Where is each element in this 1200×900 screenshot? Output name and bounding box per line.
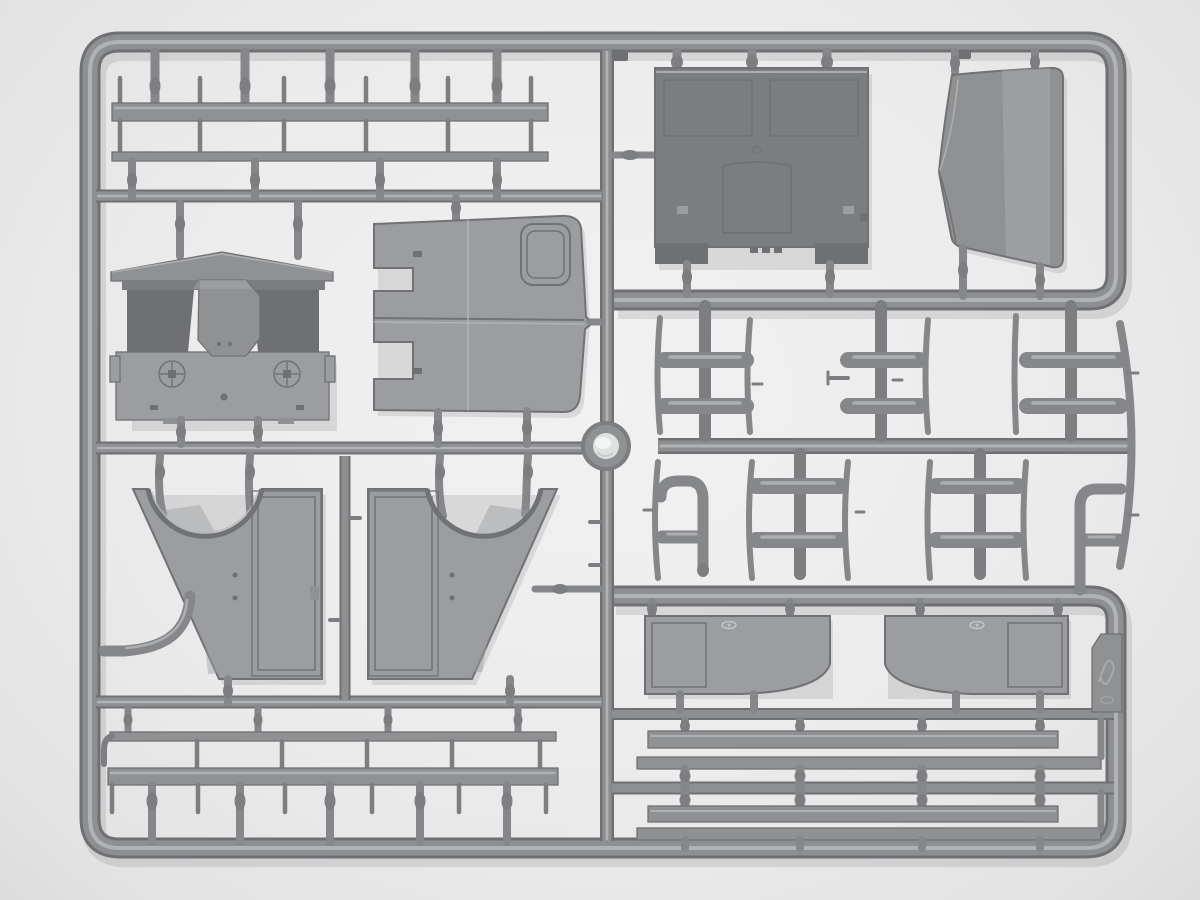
front-panel-body bbox=[655, 68, 868, 247]
cab-roof-cowl-part bbox=[110, 204, 335, 444]
tie-rod-cluster bbox=[664, 306, 746, 436]
rib-strip bbox=[1015, 316, 1017, 432]
side-slope-right bbox=[252, 290, 319, 352]
sprue-photo bbox=[0, 0, 1200, 900]
board-part-thin bbox=[637, 757, 1101, 769]
elbow-pipe-part bbox=[104, 596, 190, 651]
tie-rod-cluster bbox=[936, 454, 1018, 580]
cab-rear-wall-part bbox=[374, 198, 602, 444]
part-number-medallion bbox=[581, 421, 631, 471]
tie-rod-cluster bbox=[1027, 306, 1120, 436]
j-pipe-part bbox=[661, 481, 709, 577]
rib-strip bbox=[655, 462, 658, 578]
bottom-left-board-cluster bbox=[104, 708, 558, 842]
board-part-thick bbox=[648, 806, 1058, 822]
rib-strip bbox=[658, 318, 661, 432]
board-part-thin bbox=[637, 828, 1101, 840]
board-part-thin bbox=[110, 732, 556, 741]
sprue-drawing bbox=[0, 0, 1200, 900]
top-left-board-cluster bbox=[112, 52, 548, 197]
board-part-thin bbox=[112, 152, 548, 161]
tie-rod-cluster bbox=[756, 454, 840, 580]
rear-wall-body bbox=[374, 216, 593, 412]
rib-strip bbox=[748, 320, 751, 432]
rib-strip bbox=[845, 462, 848, 578]
cab-side-panel-left bbox=[133, 456, 322, 703]
gauge-detail bbox=[274, 361, 300, 387]
rib-strip bbox=[928, 462, 931, 578]
side-slope-left bbox=[127, 290, 194, 352]
rib-strip bbox=[1024, 462, 1027, 578]
tie-rod-cluster bbox=[848, 306, 920, 436]
f-pipe-part bbox=[1080, 489, 1121, 590]
gauge-detail bbox=[159, 361, 185, 387]
board-part-thick bbox=[112, 103, 548, 121]
board-part-thick bbox=[648, 731, 1058, 748]
logo-tab bbox=[1092, 634, 1122, 712]
rib-strip bbox=[926, 320, 929, 432]
